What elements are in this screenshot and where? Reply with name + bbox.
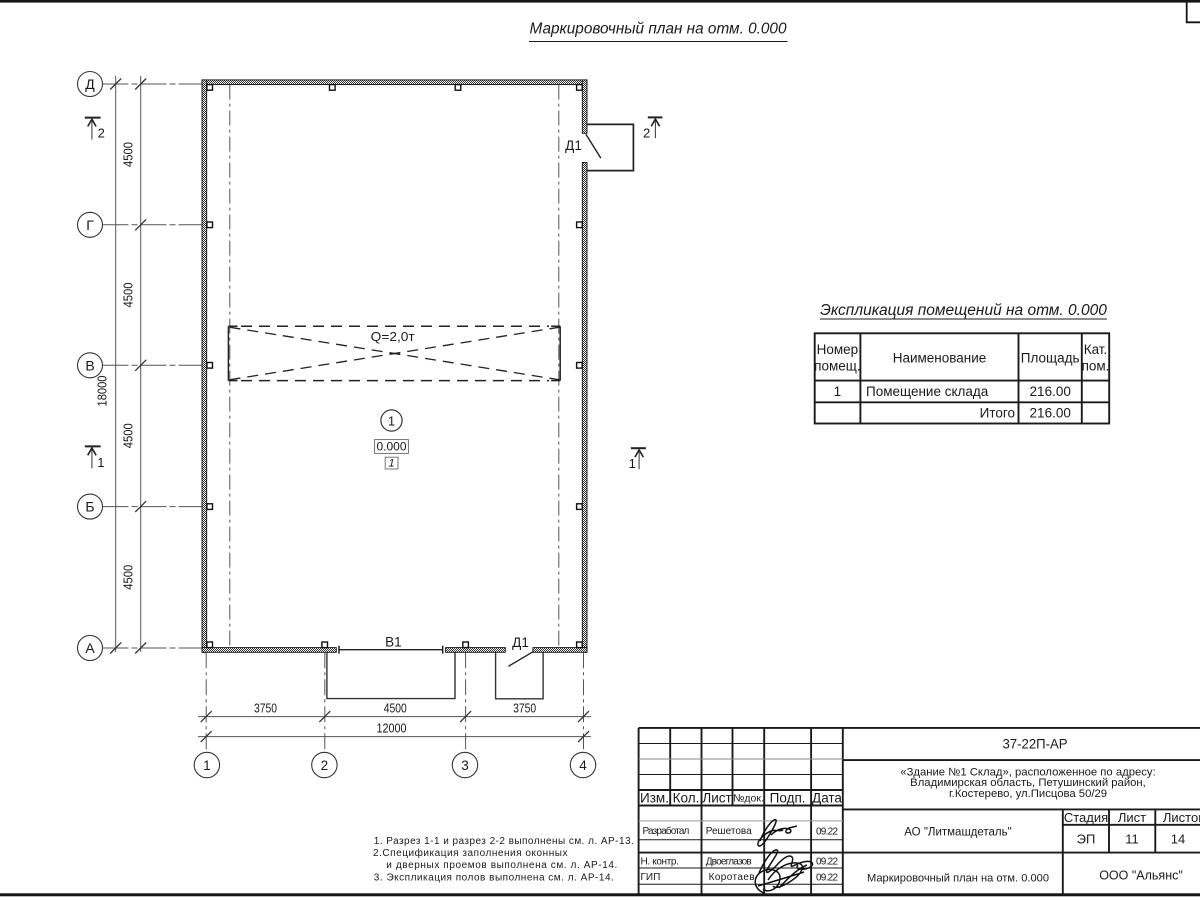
svg-text:12000: 12000 bbox=[377, 721, 407, 736]
svg-text:Д: Д bbox=[85, 76, 95, 92]
svg-text:1. Разрез 1-1 и разрез 2-2 вып: 1. Разрез 1-1 и разрез 2-2 выполнены см.… bbox=[374, 836, 634, 847]
svg-text:3750: 3750 bbox=[513, 701, 536, 716]
svg-text:Н. контр.: Н. контр. bbox=[641, 856, 679, 867]
svg-text:Q=2,0т: Q=2,0т bbox=[371, 329, 415, 344]
svg-text:Д1: Д1 bbox=[512, 635, 529, 650]
svg-text:11: 11 bbox=[1125, 832, 1139, 847]
svg-text:216.00: 216.00 bbox=[1030, 406, 1071, 421]
svg-text:В1: В1 bbox=[385, 635, 402, 650]
svg-text:18000: 18000 bbox=[95, 376, 110, 407]
svg-text:г.Костерево, ул.Писцова 50/29: г.Костерево, ул.Писцова 50/29 bbox=[949, 788, 1107, 800]
svg-text:Номер: Номер bbox=[817, 342, 859, 357]
svg-text:2: 2 bbox=[98, 126, 105, 141]
svg-text:В: В bbox=[85, 357, 94, 373]
svg-text:ООО "Альянс": ООО "Альянс" bbox=[1099, 869, 1183, 883]
svg-text:1: 1 bbox=[834, 384, 842, 399]
svg-text:09.22: 09.22 bbox=[816, 857, 839, 868]
svg-text:3750: 3750 bbox=[254, 701, 277, 716]
svg-text:№док.: №док. bbox=[733, 793, 764, 805]
svg-text:4500: 4500 bbox=[120, 423, 135, 448]
svg-text:Лист: Лист bbox=[702, 791, 731, 806]
svg-text:Г: Г bbox=[86, 217, 94, 233]
svg-text:Итого: Итого bbox=[980, 406, 1015, 421]
svg-text:пом.: пом. bbox=[1082, 358, 1110, 373]
svg-text:Помещение склада: Помещение склада bbox=[866, 384, 989, 399]
svg-text:Площадь: Площадь bbox=[1021, 351, 1080, 366]
svg-text:4500: 4500 bbox=[120, 565, 135, 590]
svg-text:Разработал: Разработал bbox=[643, 825, 690, 837]
svg-text:Подп.: Подп. bbox=[770, 791, 806, 806]
svg-text:3. Экспликация полов выполнена: 3. Экспликация полов выполнена см. л. АР… bbox=[374, 872, 614, 883]
svg-text:2.Спецификация заполнения окон: 2.Спецификация заполнения оконных bbox=[373, 847, 568, 859]
svg-text:Наименование: Наименование bbox=[893, 351, 987, 366]
svg-text:Листов: Листов bbox=[1163, 810, 1200, 825]
svg-text:Коротаев: Коротаев bbox=[709, 872, 755, 883]
svg-text:А: А bbox=[85, 640, 95, 656]
svg-text:1: 1 bbox=[97, 455, 104, 470]
svg-text:ЭП: ЭП bbox=[1077, 832, 1096, 847]
svg-text:216.00: 216.00 bbox=[1030, 384, 1071, 399]
svg-text:4500: 4500 bbox=[120, 283, 135, 308]
svg-text:и дверных проемов выполнена см: и дверных проемов выполнена см. л. АР-14… bbox=[386, 860, 617, 871]
svg-text:Кол.: Кол. bbox=[673, 791, 700, 806]
svg-text:Маркировочный план на отм. 0.0: Маркировочный план на отм. 0.000 bbox=[867, 873, 1049, 885]
svg-text:1: 1 bbox=[203, 758, 211, 773]
svg-text:Маркировочный план на отм. 0.0: Маркировочный план на отм. 0.000 bbox=[530, 21, 787, 38]
svg-text:2: 2 bbox=[643, 126, 650, 141]
svg-text:1: 1 bbox=[388, 413, 395, 428]
svg-text:2: 2 bbox=[321, 758, 329, 773]
svg-text:37-22П-АР: 37-22П-АР bbox=[1003, 736, 1068, 752]
svg-text:Дата: Дата bbox=[812, 791, 842, 806]
svg-text:Стадия: Стадия bbox=[1064, 810, 1108, 825]
svg-text:Б: Б bbox=[85, 499, 94, 515]
svg-text:Кат.: Кат. bbox=[1084, 342, 1108, 357]
svg-text:4500: 4500 bbox=[120, 142, 135, 167]
svg-text:Двоеглазов: Двоеглазов bbox=[706, 856, 752, 867]
svg-text:1: 1 bbox=[388, 458, 394, 470]
svg-text:Лист: Лист bbox=[1118, 810, 1146, 825]
svg-text:Экспликация помещений на отм.: Экспликация помещений на отм. 0.000 bbox=[820, 302, 1107, 319]
svg-text:Д1: Д1 bbox=[565, 138, 582, 153]
svg-text:ГИП: ГИП bbox=[641, 872, 661, 883]
svg-text:Изм.: Изм. bbox=[640, 791, 669, 806]
svg-text:09.22: 09.22 bbox=[816, 826, 839, 837]
svg-text:0.000: 0.000 bbox=[376, 440, 406, 454]
svg-text:Решетова: Решетова bbox=[706, 826, 752, 837]
svg-text:4500: 4500 bbox=[384, 701, 407, 716]
svg-text:1: 1 bbox=[629, 456, 636, 471]
svg-text:3: 3 bbox=[461, 758, 469, 773]
svg-text:АО "Литмашдеталь": АО "Литмашдеталь" bbox=[904, 826, 1011, 838]
svg-text:09.22: 09.22 bbox=[816, 872, 839, 883]
svg-text:14: 14 bbox=[1171, 832, 1185, 847]
svg-text:помещ.: помещ. bbox=[814, 358, 860, 373]
svg-text:4: 4 bbox=[579, 758, 587, 773]
